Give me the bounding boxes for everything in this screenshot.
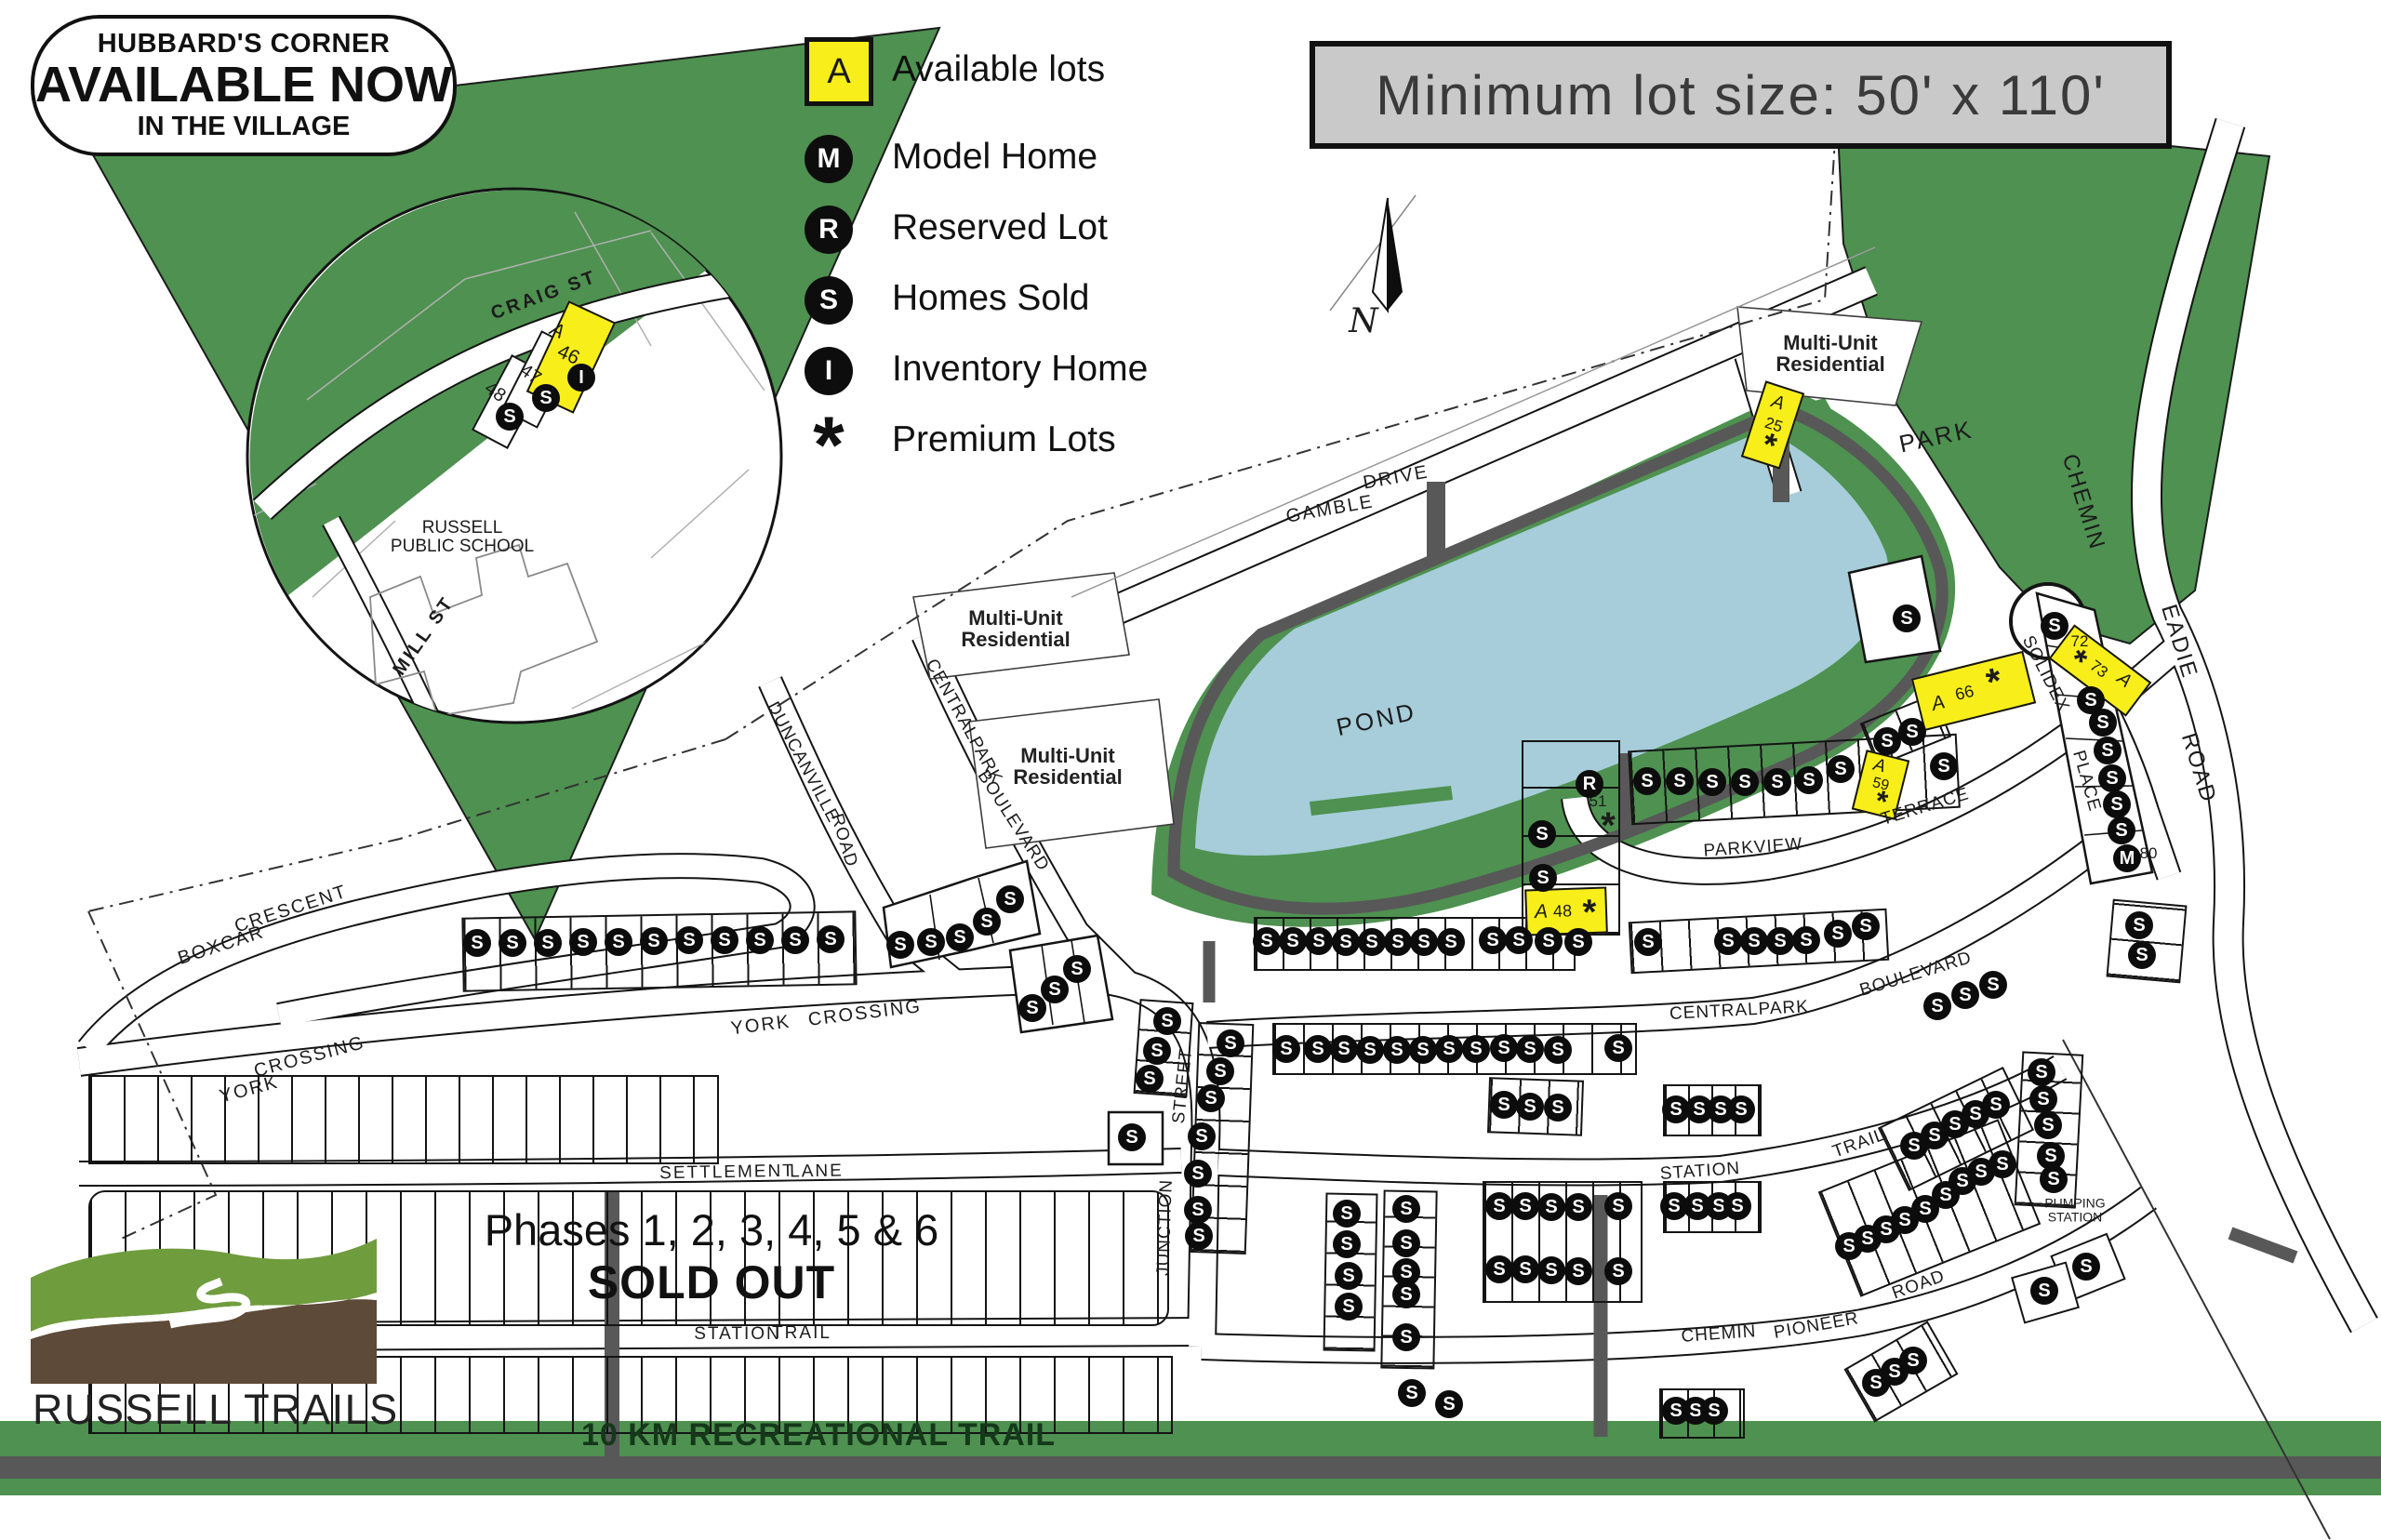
homes-sold-marker: S <box>1392 1195 1420 1223</box>
homes-sold-marker: S <box>1727 1095 1755 1123</box>
homes-sold-marker: S <box>463 929 491 957</box>
homes-sold-marker: S <box>1335 1293 1363 1321</box>
homes-sold-marker: S <box>1564 1193 1592 1221</box>
homes-sold-marker: S <box>1511 1192 1539 1220</box>
map-label: SETTLEMENT <box>659 1162 795 1183</box>
homes-sold-marker: S <box>1253 927 1281 955</box>
homes-sold-marker: S <box>1852 912 1880 940</box>
north-compass <box>1330 195 1416 311</box>
homes-sold-marker: S <box>1723 1192 1751 1220</box>
sold-out-line: SOLD OUT <box>391 1255 1032 1309</box>
homes-sold-marker: S <box>1272 1035 1300 1063</box>
inventory-home-marker: I <box>567 364 595 392</box>
reserved-lot-circle-icon: R <box>805 206 853 254</box>
homes-sold-marker: S <box>1873 727 1901 755</box>
available-letter: A <box>2113 668 2135 692</box>
homes-sold-marker: S <box>1063 955 1091 983</box>
homes-sold-marker: S <box>1392 1281 1420 1308</box>
homes-sold-marker: S <box>996 885 1024 913</box>
lot-number: 66 <box>1953 682 1976 705</box>
map-label: LANE <box>790 1162 844 1182</box>
homes-sold-marker: S <box>1384 928 1412 956</box>
site-plan-map: HUBBARD'S CORNER AVAILABLE NOW IN THE VI… <box>0 0 2381 1540</box>
inventory-home-circle-icon: I <box>805 347 853 395</box>
homes-sold-marker: S <box>1409 1036 1437 1064</box>
homes-sold-marker: S <box>1279 927 1307 955</box>
lot-size-banner: Minimum lot size: 50' x 110' <box>1310 41 2172 149</box>
callout-title: AVAILABLE NOW <box>34 60 453 111</box>
homes-sold-marker: S <box>1410 928 1438 956</box>
homes-sold-marker: S <box>2030 1277 2058 1305</box>
premium-lot-star: * <box>1582 906 1596 921</box>
homes-sold-marker: S <box>1392 1323 1420 1351</box>
available-letter: A <box>1929 691 1947 716</box>
trail-gray-band <box>0 1456 2381 1479</box>
homes-sold-marker: S <box>1792 926 1820 954</box>
homes-sold-marker: S <box>973 908 1001 936</box>
homes-sold-marker: S <box>1332 928 1360 956</box>
homes-sold-marker: S <box>1197 1084 1225 1112</box>
homes-sold-marker: S <box>2028 1058 2055 1086</box>
lot-size-text: Minimum lot size: 50' x 110' <box>1376 63 2106 127</box>
legend-label: Model Home <box>892 137 1097 178</box>
homes-sold-marker: S <box>1951 981 1979 1009</box>
homes-sold-marker: S <box>2125 911 2153 939</box>
homes-sold-marker: S <box>1698 768 1726 796</box>
homes-sold-marker: S <box>1505 926 1533 954</box>
homes-sold-marker: S <box>1633 767 1661 795</box>
homes-sold-marker: S <box>2041 612 2068 640</box>
logo-graphic <box>31 1235 377 1384</box>
homes-sold-marker: S <box>1490 1091 1518 1119</box>
homes-sold-marker: S <box>1136 1065 1164 1093</box>
premium-lot-star: * <box>1761 437 1777 454</box>
homes-sold-marker: S <box>1184 1196 1212 1224</box>
homes-sold-marker: S <box>1604 1192 1632 1220</box>
recreational-trail-label: 10 KM RECREATIONAL TRAIL <box>577 1417 1060 1454</box>
homes-sold-marker: S <box>1516 1093 1544 1121</box>
homes-sold-marker: S <box>605 928 632 956</box>
homes-sold-marker: S <box>1537 1193 1565 1221</box>
homes-sold-marker: S <box>1700 1397 1728 1425</box>
north-label: N <box>1349 304 1378 339</box>
homes-sold-marker: S <box>2034 1111 2062 1139</box>
homes-sold-marker: S <box>711 926 738 954</box>
homes-sold-marker: S <box>2098 764 2126 792</box>
homes-sold-marker: S <box>917 928 945 956</box>
map-label: Multi-Unit Residential <box>961 607 1070 650</box>
reserved-lot-marker: R <box>1576 770 1603 798</box>
homes-sold-marker: S <box>532 384 560 412</box>
homes-sold-marker: S <box>1528 820 1556 848</box>
homes-sold-marker: S <box>1490 1034 1518 1062</box>
homes-sold-marker: S <box>1511 1255 1539 1283</box>
homes-sold-marker: S <box>1188 1122 1216 1150</box>
homes-sold-marker: S <box>1666 767 1694 795</box>
homes-sold-marker: S <box>2094 737 2122 764</box>
russell-trails-logo: RUSSELL TRAILS <box>31 1235 377 1432</box>
homes-sold-marker: S <box>1143 1037 1171 1065</box>
homes-sold-marker: S <box>1392 1229 1420 1257</box>
premium-lot-star: * <box>2068 651 2087 670</box>
premium-lot-asterisk-icon: * <box>805 418 853 466</box>
homes-sold-marker: S <box>1979 971 2007 999</box>
homes-sold-marker: S <box>675 926 703 954</box>
homes-sold-marker: S <box>640 927 668 955</box>
homes-sold-marker: S <box>1634 928 1662 956</box>
map-label: 80 <box>2140 845 2158 862</box>
phases-sold-out-note: Phases 1, 2, 3, 4, 5 & 6 SOLD OUT <box>391 1204 1032 1309</box>
homes-sold-marker: S <box>1827 755 1855 783</box>
legend-label: Homes Sold <box>892 278 1089 319</box>
homes-sold-marker: S <box>1184 1160 1212 1188</box>
homes-sold-marker: S <box>1304 1035 1332 1063</box>
available-lot-square-icon: A <box>805 37 873 106</box>
homes-sold-marker: S <box>2029 1085 2057 1113</box>
homes-sold-marker: S <box>1982 1091 2010 1119</box>
homes-sold-marker: S <box>1435 1035 1463 1063</box>
homes-sold-marker: S <box>1824 920 1852 948</box>
homes-sold-marker: S <box>946 923 974 951</box>
legend-label: Premium Lots <box>892 419 1116 460</box>
map-label: JUNCTION <box>1154 1179 1177 1277</box>
homes-sold-marker: S <box>1763 768 1791 796</box>
available-letter: A <box>1769 392 1788 416</box>
homes-sold-marker: S <box>1535 927 1563 955</box>
legend-label: Available lots <box>892 49 1105 90</box>
homes-sold-marker: S <box>1217 1029 1244 1057</box>
map-label: Multi-Unit Residential <box>1776 332 1884 375</box>
homes-sold-marker: S <box>1516 1035 1544 1063</box>
homes-sold-marker: S <box>1437 928 1465 956</box>
homes-sold-marker: S <box>1398 1379 1426 1407</box>
lot-block <box>88 1075 719 1164</box>
premium-lot-star: * <box>1986 673 2003 691</box>
homes-sold-marker: S <box>1893 604 1921 632</box>
callout-location: IN THE VILLAGE <box>34 112 453 142</box>
homes-sold-marker: S <box>1485 1192 1513 1220</box>
homes-sold-marker: S <box>1435 1390 1463 1418</box>
map-label: 72 <box>2071 633 2089 650</box>
homes-sold-marker: S <box>1989 1150 2016 1178</box>
homes-sold-marker: S <box>1740 927 1768 955</box>
lot-number: 73 <box>2086 657 2111 682</box>
homes-sold-marker: S <box>1462 1035 1490 1063</box>
homes-sold-marker: S <box>1898 718 1926 746</box>
map-label: TRAIL <box>772 1324 831 1343</box>
homes-sold-marker: S <box>1383 1036 1411 1064</box>
homes-sold-marker: S <box>1604 1257 1632 1285</box>
map-label: PUMPING STATION <box>2044 1196 2105 1223</box>
homes-sold-marker: S <box>1330 1035 1358 1063</box>
homes-sold-marker: S <box>1335 1262 1363 1290</box>
legend-label: Reserved Lot <box>892 207 1108 248</box>
premium-lot-star: * <box>1874 794 1888 808</box>
homes-sold-marker: S <box>886 931 914 959</box>
homes-sold-marker: S <box>1923 992 1951 1020</box>
homes-sold-marker: S <box>781 926 809 954</box>
legend-label: Inventory Home <box>892 349 1148 390</box>
logo-wordmark: RUSSELL TRAILS <box>33 1386 399 1434</box>
homes-sold-marker: S <box>1305 927 1333 955</box>
homes-sold-marker: S <box>1185 1222 1213 1250</box>
homes-sold-marker: S <box>1018 994 1046 1022</box>
homes-sold-marker: S <box>1714 927 1742 955</box>
homes-sold-marker: S <box>1899 1347 1927 1374</box>
model-home-marker: M <box>2113 844 2141 872</box>
homes-sold-marker: S <box>534 929 562 957</box>
homes-sold-marker: S <box>2103 790 2131 818</box>
homes-sold-marker: S <box>569 928 597 956</box>
model-home-circle-icon: M <box>805 135 853 183</box>
homes-sold-marker: S <box>1604 1034 1632 1062</box>
homes-sold-marker: S <box>1118 1123 1146 1151</box>
homes-sold-marker: S <box>2108 816 2135 844</box>
homes-sold-marker: S <box>1930 752 1958 780</box>
homes-sold-marker: S <box>2128 941 2156 969</box>
available-letter: A <box>1535 901 1549 923</box>
homes-sold-marker: S <box>1731 768 1759 796</box>
homes-sold-marker: S <box>1153 1007 1181 1035</box>
homes-sold-marker: S <box>2072 1253 2100 1281</box>
homes-sold-marker: S <box>1537 1256 1565 1284</box>
homes-sold-marker: S <box>2040 1165 2068 1193</box>
available-lot: A48* <box>1524 886 1608 936</box>
homes-sold-marker: S <box>746 926 774 954</box>
phases-line: Phases 1, 2, 3, 4, 5 & 6 <box>391 1204 1032 1255</box>
map-label: RUSSELL PUBLIC SCHOOL <box>391 519 534 556</box>
homes-sold-marker: S <box>1333 1200 1361 1228</box>
homes-sold-marker: S <box>1356 1036 1384 1064</box>
premium-lot-star: * <box>1601 816 1616 835</box>
homes-sold-circle-icon: S <box>805 276 853 325</box>
homes-sold-marker: S <box>1544 1094 1572 1122</box>
homes-sold-marker: S <box>1485 1255 1513 1283</box>
callout-subtitle: HUBBARD'S CORNER <box>34 29 453 60</box>
homes-sold-marker: S <box>1564 928 1592 956</box>
availability-callout: HUBBARD'S CORNER AVAILABLE NOW IN THE VI… <box>31 15 457 156</box>
homes-sold-marker: S <box>1766 927 1794 955</box>
homes-sold-marker: S <box>2089 709 2117 737</box>
homes-sold-marker: S <box>1529 864 1557 892</box>
homes-sold-marker: S <box>1206 1057 1234 1085</box>
homes-sold-marker: S <box>499 929 526 957</box>
lot-number: 48 <box>1553 901 1573 922</box>
homes-sold-marker: S <box>1564 1257 1592 1285</box>
map-label: Multi-Unit Residential <box>1013 745 1122 788</box>
homes-sold-marker: S <box>1544 1036 1572 1064</box>
homes-sold-marker: S <box>817 925 845 953</box>
homes-sold-marker: S <box>1041 976 1069 1003</box>
homes-sold-marker: S <box>1333 1230 1361 1258</box>
map-label: STATION <box>694 1325 781 1344</box>
homes-sold-marker: S <box>1795 766 1823 794</box>
homes-sold-marker: S <box>496 403 524 431</box>
homes-sold-marker: S <box>1358 928 1386 956</box>
homes-sold-marker: S <box>1479 926 1507 954</box>
